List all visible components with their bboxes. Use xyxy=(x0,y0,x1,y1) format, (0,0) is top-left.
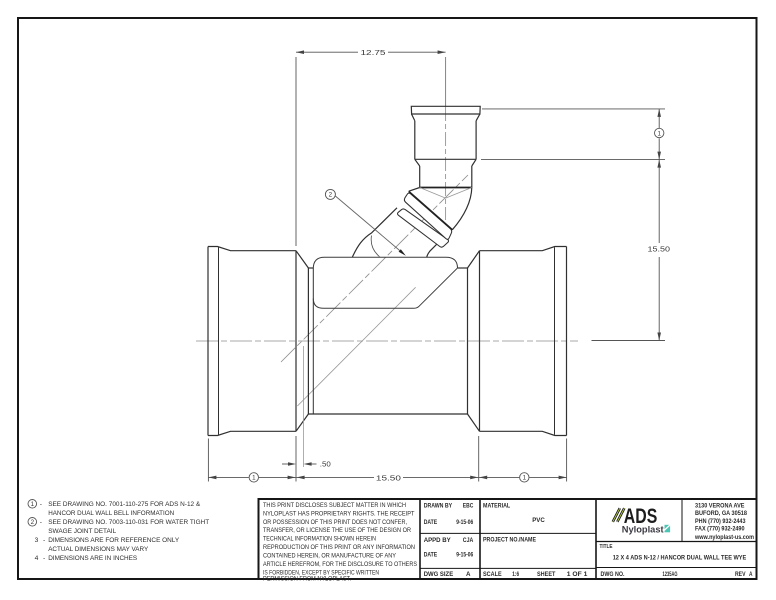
svg-text:CONTAINED HEREIN, OR MANUFACTU: CONTAINED HEREIN, OR MANUFACTURE OF ANY xyxy=(263,553,397,560)
svg-text:APPD BY: APPD BY xyxy=(424,537,452,544)
svg-text:15.50: 15.50 xyxy=(648,245,671,254)
svg-text:MATERIAL: MATERIAL xyxy=(483,503,510,510)
svg-text:12 X 4 ADS N-12 / HANCOR DUAL: 12 X 4 ADS N-12 / HANCOR DUAL WALL TEE W… xyxy=(613,555,747,562)
svg-text:-: - xyxy=(43,555,45,562)
svg-text:SEE DRAWING NO. 7003-110-031 F: SEE DRAWING NO. 7003-110-031 FOR WATER T… xyxy=(48,519,209,526)
svg-text:Nyloplast: Nyloplast xyxy=(622,523,664,534)
svg-text:12.75: 12.75 xyxy=(361,48,386,57)
svg-text:ARTICLE HEREFROM, FOR THE DISC: ARTICLE HEREFROM, FOR THE DISCLOSURE TO … xyxy=(263,561,418,568)
svg-text:-: - xyxy=(40,519,42,526)
svg-text:CJA: CJA xyxy=(463,537,474,544)
svg-text:1: 1 xyxy=(31,501,35,508)
svg-text:NYLOPLAST HAS PROPRIETARY RIGH: NYLOPLAST HAS PROPRIETARY RIGHTS. THE RE… xyxy=(263,510,415,517)
svg-text:3: 3 xyxy=(35,537,39,544)
svg-text:DATE: DATE xyxy=(424,519,438,526)
svg-text:15.50: 15.50 xyxy=(376,473,401,482)
svg-text:1 OF 1: 1 OF 1 xyxy=(567,571,588,578)
svg-text:SHEET: SHEET xyxy=(537,571,556,578)
svg-text:.50: .50 xyxy=(320,459,331,468)
svg-text:HANCOR DUAL WALL BELL INFORMAT: HANCOR DUAL WALL BELL INFORMATION xyxy=(48,510,174,517)
svg-text:1:6: 1:6 xyxy=(512,571,519,578)
svg-text:SWAGE JOINT DETAIL: SWAGE JOINT DETAIL xyxy=(48,528,116,535)
svg-text:A: A xyxy=(749,571,753,578)
svg-text:TRANSFER, OR LICENSE THE USE O: TRANSFER, OR LICENSE THE USE OF THE DESI… xyxy=(263,527,411,534)
svg-text:4: 4 xyxy=(35,555,39,562)
svg-text:TITLE: TITLE xyxy=(600,544,613,550)
svg-text:-: - xyxy=(43,537,45,544)
svg-text:REPRODUCTION OF THIS PRINT OR: REPRODUCTION OF THIS PRINT OR ANY INFORM… xyxy=(263,544,415,551)
svg-text:FAX (770) 932-2490: FAX (770) 932-2490 xyxy=(695,527,745,533)
svg-text:TECHNICAL INFORMATION SHOWN HE: TECHNICAL INFORMATION SHOWN HEREIN xyxy=(263,536,376,543)
svg-text:ACTUAL DIMENSIONS MAY VARY: ACTUAL DIMENSIONS MAY VARY xyxy=(48,546,148,553)
svg-text:THIS PRINT DISCLOSES SUBJECT M: THIS PRINT DISCLOSES SUBJECT MATTER IN W… xyxy=(263,502,406,509)
svg-text:DIMENSIONS ARE FOR REFERENCE O: DIMENSIONS ARE FOR REFERENCE ONLY xyxy=(48,537,180,544)
svg-text:A: A xyxy=(466,571,471,578)
svg-text:BUFORD, GA 30518: BUFORD, GA 30518 xyxy=(695,511,748,517)
svg-text:3130 VERONA AVE: 3130 VERONA AVE xyxy=(695,504,745,510)
svg-text:SEE DRAWING NO. 7001-110-275 F: SEE DRAWING NO. 7001-110-275 FOR ADS N-1… xyxy=(48,501,201,508)
svg-text:www.nyloplast-us.com: www.nyloplast-us.com xyxy=(694,535,754,541)
svg-text:-: - xyxy=(40,501,42,508)
svg-text:2: 2 xyxy=(31,519,35,526)
svg-text:PHN (770) 932-2443: PHN (770) 932-2443 xyxy=(695,519,746,525)
svg-text:DWG SIZE: DWG SIZE xyxy=(424,571,454,578)
svg-text:REV: REV xyxy=(735,571,746,578)
svg-text:PERMISSION FROM NYLOPLAST.: PERMISSION FROM NYLOPLAST. xyxy=(263,576,351,583)
svg-text:1: 1 xyxy=(523,475,527,482)
svg-text:PVC: PVC xyxy=(532,517,545,524)
svg-text:SCALE: SCALE xyxy=(483,571,502,578)
svg-text:2: 2 xyxy=(329,192,333,199)
svg-text:1235AG: 1235AG xyxy=(663,571,678,578)
svg-text:OR POSSESSION OF THIS PRINT DO: OR POSSESSION OF THIS PRINT DOES NOT CON… xyxy=(263,519,407,526)
svg-text:1: 1 xyxy=(657,130,661,137)
svg-text:DWG NO.: DWG NO. xyxy=(601,571,625,578)
svg-text:DIMENSIONS ARE IN INCHES: DIMENSIONS ARE IN INCHES xyxy=(48,555,138,562)
svg-text:EBC: EBC xyxy=(463,503,474,510)
svg-text:9-15-06: 9-15-06 xyxy=(456,552,473,559)
svg-text:9-15-06: 9-15-06 xyxy=(456,519,473,526)
svg-text:PROJECT NO./NAME: PROJECT NO./NAME xyxy=(483,537,536,544)
svg-text:DRAWN BY: DRAWN BY xyxy=(424,503,453,510)
svg-text:DATE: DATE xyxy=(424,552,438,559)
svg-text:1: 1 xyxy=(252,475,256,482)
